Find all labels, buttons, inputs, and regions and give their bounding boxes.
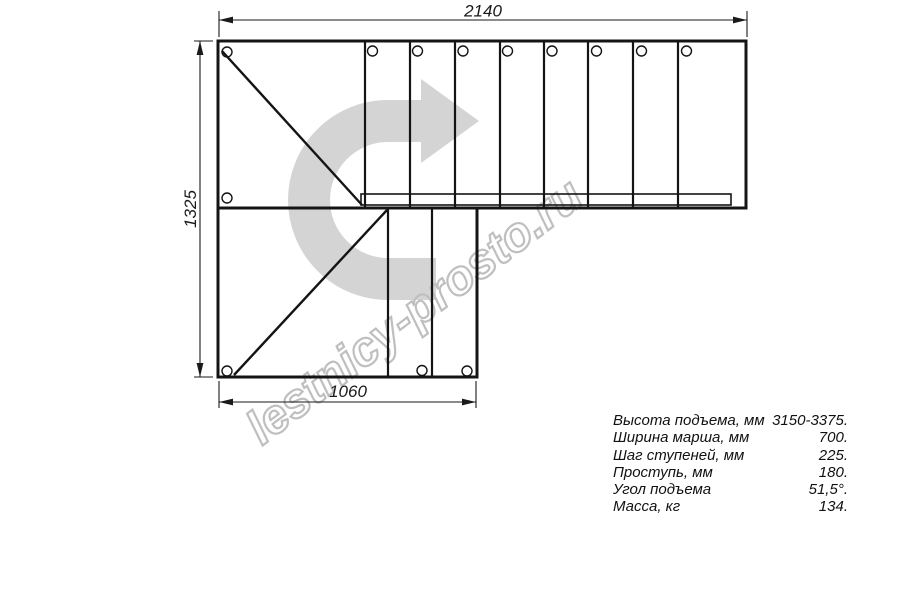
direction-arrow-head xyxy=(421,79,479,163)
mounting-hole-icon xyxy=(222,193,232,203)
mounting-hole-icon xyxy=(417,366,427,376)
spec-label: Ширина марша, мм xyxy=(613,429,749,446)
spec-row-angle: Угол подъема 51,5°. xyxy=(613,481,848,498)
spec-value: 134. xyxy=(819,498,848,515)
mounting-hole-icon xyxy=(368,46,378,56)
dimension-arrow-icon xyxy=(197,363,204,377)
stair-plan-canvas: lestnicy-prosto.ru xyxy=(0,0,900,600)
spec-value: 700. xyxy=(819,429,848,446)
spec-label: Шаг ступеней, мм xyxy=(613,447,744,464)
mounting-hole-icon xyxy=(547,46,557,56)
specs-table: Высота подъема, мм 3150-3375. Ширина мар… xyxy=(613,412,848,516)
dimension-arrow-icon xyxy=(197,41,204,55)
mounting-hole-icon xyxy=(637,46,647,56)
spec-value: 225. xyxy=(819,447,848,464)
spec-value: 180. xyxy=(819,464,848,481)
spec-label: Проступь, мм xyxy=(613,464,713,481)
spec-label: Угол подъема xyxy=(613,481,711,498)
spec-label: Масса, кг xyxy=(613,498,680,515)
dimension-arrow-icon xyxy=(733,17,747,24)
dimension-arrow-icon xyxy=(219,399,233,406)
mounting-hole-icon xyxy=(458,46,468,56)
stair-plan-drawing xyxy=(218,41,746,377)
spec-row-mass: Масса, кг 134. xyxy=(613,498,848,515)
spec-value: 3150-3375. xyxy=(772,412,848,429)
dimension-left-label: 1325 xyxy=(181,190,200,228)
mounting-hole-icon xyxy=(222,366,232,376)
dimension-arrow-icon xyxy=(462,399,476,406)
mounting-hole-icon xyxy=(462,366,472,376)
mounting-hole-icon xyxy=(503,46,513,56)
mounting-hole-icon xyxy=(592,46,602,56)
spec-label: Высота подъема, мм xyxy=(613,412,765,429)
spec-row-height: Высота подъема, мм 3150-3375. xyxy=(613,412,848,429)
dimension-top-label: 2140 xyxy=(463,2,502,21)
spec-value: 51,5°. xyxy=(809,481,848,498)
dimension-bottom-label: 1060 xyxy=(329,382,367,401)
mounting-hole-icon xyxy=(413,46,423,56)
mounting-hole-icon xyxy=(682,46,692,56)
spec-row-march-width: Ширина марша, мм 700. xyxy=(613,429,848,446)
direction-arrow-shaft xyxy=(309,121,436,279)
dimension-arrow-icon xyxy=(219,17,233,24)
spec-row-step: Шаг ступеней, мм 225. xyxy=(613,447,848,464)
spec-row-tread: Проступь, мм 180. xyxy=(613,464,848,481)
